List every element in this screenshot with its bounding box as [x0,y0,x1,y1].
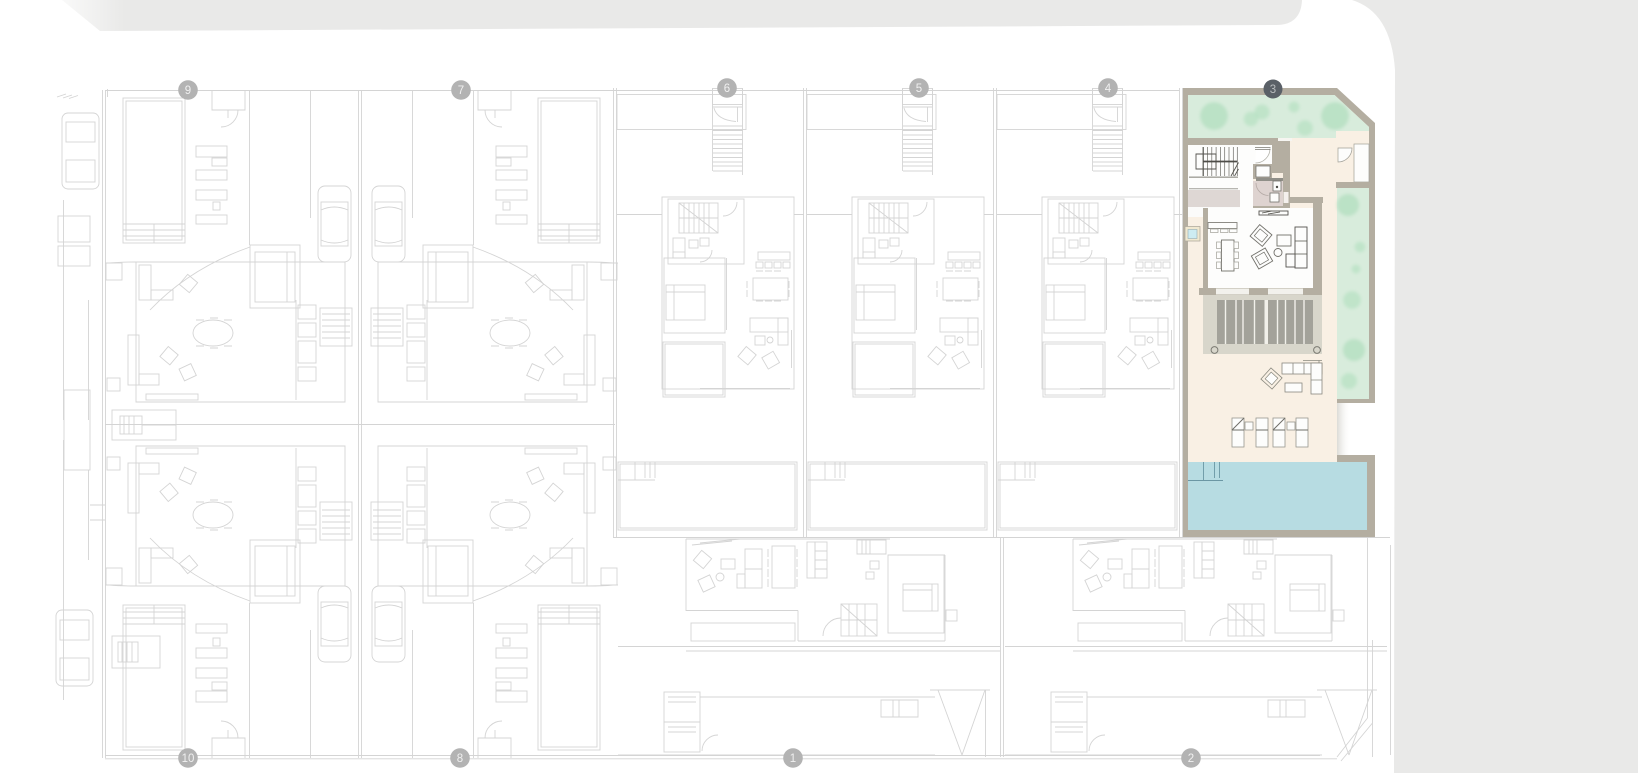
svg-text:1: 1 [790,753,796,765]
svg-text:10: 10 [182,753,195,765]
svg-text:7: 7 [458,85,464,97]
svg-text:8: 8 [457,753,463,765]
svg-text:5: 5 [916,83,922,95]
svg-text:6: 6 [724,83,730,95]
svg-text:3: 3 [1270,84,1276,96]
svg-text:2: 2 [1188,753,1194,765]
svg-text:9: 9 [185,85,191,97]
svg-text:4: 4 [1105,83,1112,95]
